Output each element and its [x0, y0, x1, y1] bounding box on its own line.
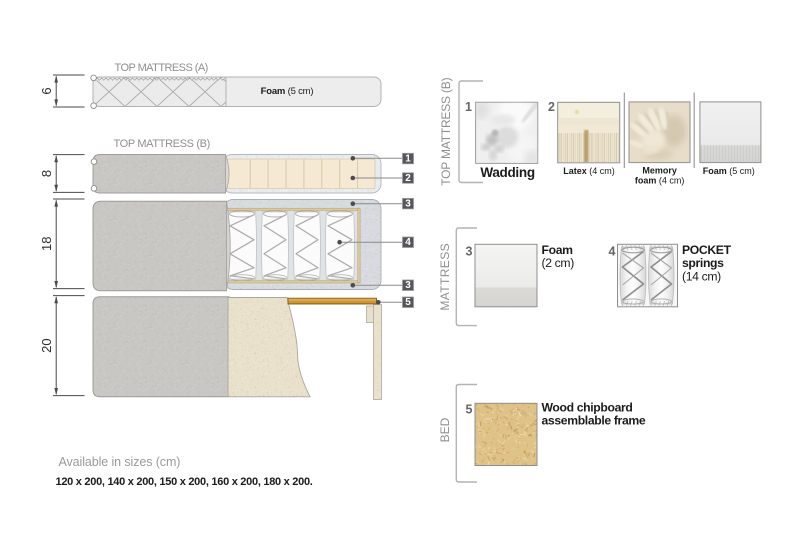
svg-text:BED: BED: [438, 417, 452, 442]
svg-text:TOP MATTRESS (B): TOP MATTRESS (B): [439, 77, 453, 185]
svg-text:2: 2: [548, 100, 555, 114]
svg-text:8: 8: [39, 170, 54, 177]
svg-text:assemblable frame: assemblable frame: [542, 414, 646, 428]
svg-text:foam (4 cm): foam (4 cm): [635, 175, 685, 185]
svg-text:5: 5: [466, 402, 473, 416]
svg-text:TOP MATTRESS (A): TOP MATTRESS (A): [115, 62, 208, 74]
svg-text:Foam: Foam: [542, 243, 574, 257]
svg-text:Wood chipboard: Wood chipboard: [542, 400, 633, 414]
svg-text:springs: springs: [682, 256, 724, 270]
svg-text:120 x 200, 140 x 200, 150 x 20: 120 x 200, 140 x 200, 150 x 200, 160 x 2…: [56, 476, 313, 488]
svg-text:4: 4: [609, 245, 616, 259]
svg-text:MATTRESS: MATTRESS: [438, 243, 452, 311]
svg-text:TOP MATTRESS (B): TOP MATTRESS (B): [114, 138, 210, 150]
svg-text:Latex (4 cm): Latex (4 cm): [563, 166, 615, 176]
svg-text:Foam (5 cm): Foam (5 cm): [703, 166, 755, 176]
svg-text:3: 3: [405, 199, 411, 210]
svg-text:1: 1: [465, 100, 472, 114]
svg-text:3: 3: [466, 245, 473, 259]
svg-text:3: 3: [405, 280, 411, 291]
svg-text:20: 20: [39, 338, 54, 352]
svg-text:4: 4: [405, 237, 411, 248]
svg-text:5: 5: [405, 297, 411, 308]
svg-text:(2 cm): (2 cm): [542, 256, 575, 270]
svg-text:Available in sizes (cm): Available in sizes (cm): [59, 455, 181, 469]
svg-text:18: 18: [39, 237, 54, 251]
svg-text:Memory: Memory: [642, 166, 677, 176]
svg-text:Wadding: Wadding: [480, 165, 534, 180]
svg-text:Foam (5 cm): Foam (5 cm): [261, 86, 314, 97]
svg-text:1: 1: [405, 154, 411, 165]
svg-text:2: 2: [405, 173, 411, 184]
svg-text:(14 cm): (14 cm): [682, 270, 721, 284]
svg-text:6: 6: [39, 87, 54, 94]
svg-text:POCKET: POCKET: [682, 243, 732, 257]
